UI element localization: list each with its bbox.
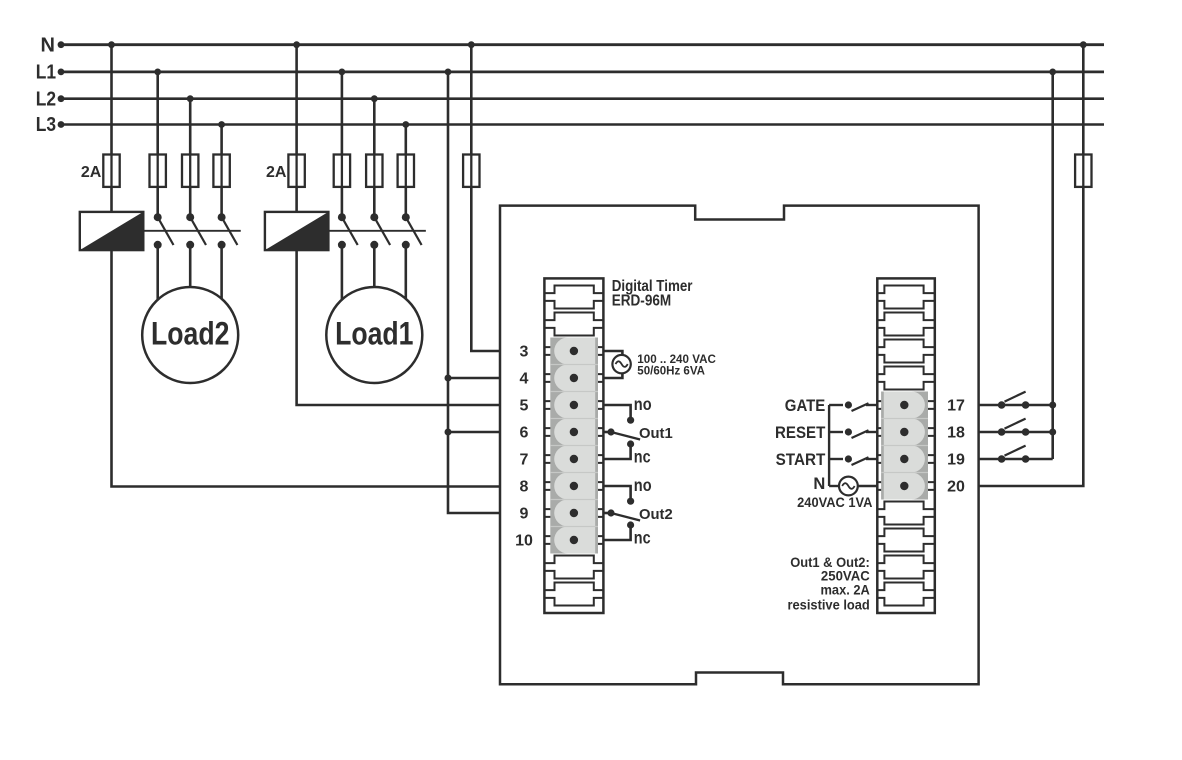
svg-text:240VAC 1VA: 240VAC 1VA bbox=[797, 495, 873, 510]
svg-text:3: 3 bbox=[520, 344, 529, 361]
svg-text:5: 5 bbox=[520, 398, 529, 415]
svg-text:10: 10 bbox=[515, 533, 533, 550]
svg-text:17: 17 bbox=[947, 398, 965, 415]
svg-text:START: START bbox=[776, 451, 826, 469]
svg-text:2A: 2A bbox=[81, 164, 102, 181]
svg-text:Out1: Out1 bbox=[639, 425, 673, 442]
svg-text:7: 7 bbox=[520, 452, 529, 469]
svg-text:nc: nc bbox=[634, 528, 651, 548]
svg-text:9: 9 bbox=[520, 506, 529, 523]
svg-text:max. 2A: max. 2A bbox=[821, 582, 870, 598]
svg-text:4: 4 bbox=[520, 371, 529, 388]
svg-text:GATE: GATE bbox=[785, 397, 826, 415]
svg-text:8: 8 bbox=[520, 479, 529, 496]
svg-text:no: no bbox=[634, 394, 652, 414]
svg-text:ERD-96M: ERD-96M bbox=[612, 292, 672, 309]
svg-text:L2: L2 bbox=[36, 88, 56, 110]
svg-text:Load2: Load2 bbox=[151, 316, 229, 352]
svg-text:nc: nc bbox=[634, 447, 651, 467]
svg-text:20: 20 bbox=[947, 479, 965, 496]
svg-text:L3: L3 bbox=[36, 114, 56, 136]
svg-text:resistive load: resistive load bbox=[788, 597, 870, 613]
svg-text:Out2: Out2 bbox=[639, 506, 673, 523]
svg-text:N: N bbox=[41, 34, 55, 56]
svg-text:N: N bbox=[813, 475, 825, 493]
svg-text:2A: 2A bbox=[266, 164, 287, 181]
svg-text:no: no bbox=[634, 475, 652, 495]
svg-text:L1: L1 bbox=[36, 62, 56, 84]
svg-text:50/60Hz 6VA: 50/60Hz 6VA bbox=[637, 364, 705, 378]
svg-text:18: 18 bbox=[947, 425, 965, 442]
svg-text:6: 6 bbox=[520, 425, 529, 442]
svg-text:RESET: RESET bbox=[775, 424, 825, 442]
svg-text:Load1: Load1 bbox=[335, 316, 413, 352]
svg-text:19: 19 bbox=[947, 452, 965, 469]
